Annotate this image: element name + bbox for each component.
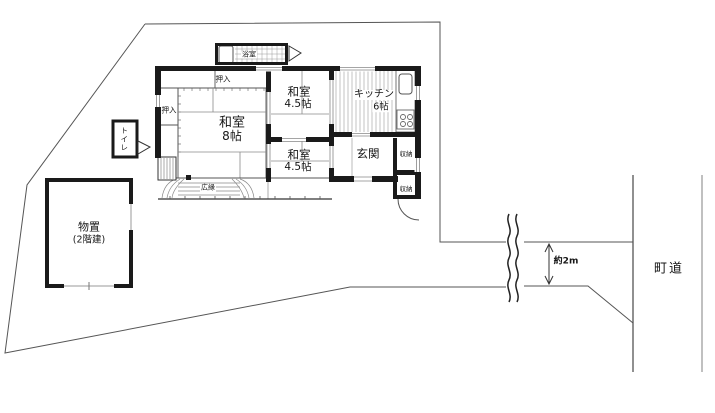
room-label-washitsu8-size: 8帖 — [222, 130, 242, 142]
road-label: 町道 — [654, 263, 684, 276]
room-label-washitsu45s-name: 和室 — [288, 149, 311, 161]
room-label-bathroom: 浴室 — [241, 52, 257, 59]
closet-rails — [161, 71, 266, 157]
room-label-hiroen: 広縁 — [200, 185, 216, 192]
dimension-arrow-icon — [545, 244, 553, 284]
floor-plan-page: 和室 8帖 和室 4.5帖 和室 4.5帖 キッチン 6帖 玄関 浴室 トイレ … — [0, 0, 715, 413]
shed-label-floors: (2階建) — [73, 235, 105, 245]
door-arrow-icon — [138, 141, 150, 154]
storage-label-lower: 収納 — [400, 186, 413, 193]
bathroom-outline — [217, 45, 302, 65]
bathtub-icon — [219, 46, 233, 63]
shed-label-name: 物置 — [78, 222, 100, 233]
door-swing-icon — [398, 199, 419, 220]
stairs-stripes — [158, 157, 176, 180]
kitchen-counter — [396, 70, 415, 132]
door-arrow-icon — [289, 46, 301, 61]
room-label-genkan: 玄関 — [357, 148, 380, 160]
sink-icon — [399, 74, 412, 94]
room-label-washitsu8-name: 和室 — [219, 117, 245, 130]
approach-width-label: 約2m — [554, 258, 579, 267]
floor-plan-drawing — [0, 0, 715, 413]
room-label-kitchen-name: キッチン — [353, 90, 395, 100]
closet-label-west: 押入 — [162, 106, 177, 114]
break-wave-icon — [508, 214, 518, 302]
toilet-outline — [113, 121, 150, 157]
room-label-washitsu45n-size: 4.5帖 — [284, 99, 311, 110]
closet-label-north: 押入 — [216, 75, 231, 83]
room-label-washitsu45s-size: 4.5帖 — [284, 162, 311, 173]
room-label-washitsu45n-name: 和室 — [288, 86, 311, 98]
storage-label-upper: 収納 — [400, 151, 413, 158]
post-mark — [186, 175, 191, 180]
engawa-lines — [158, 175, 332, 199]
room-label-kitchen-size: 6帖 — [372, 102, 390, 112]
room-label-toilet: トイレ — [120, 126, 128, 152]
